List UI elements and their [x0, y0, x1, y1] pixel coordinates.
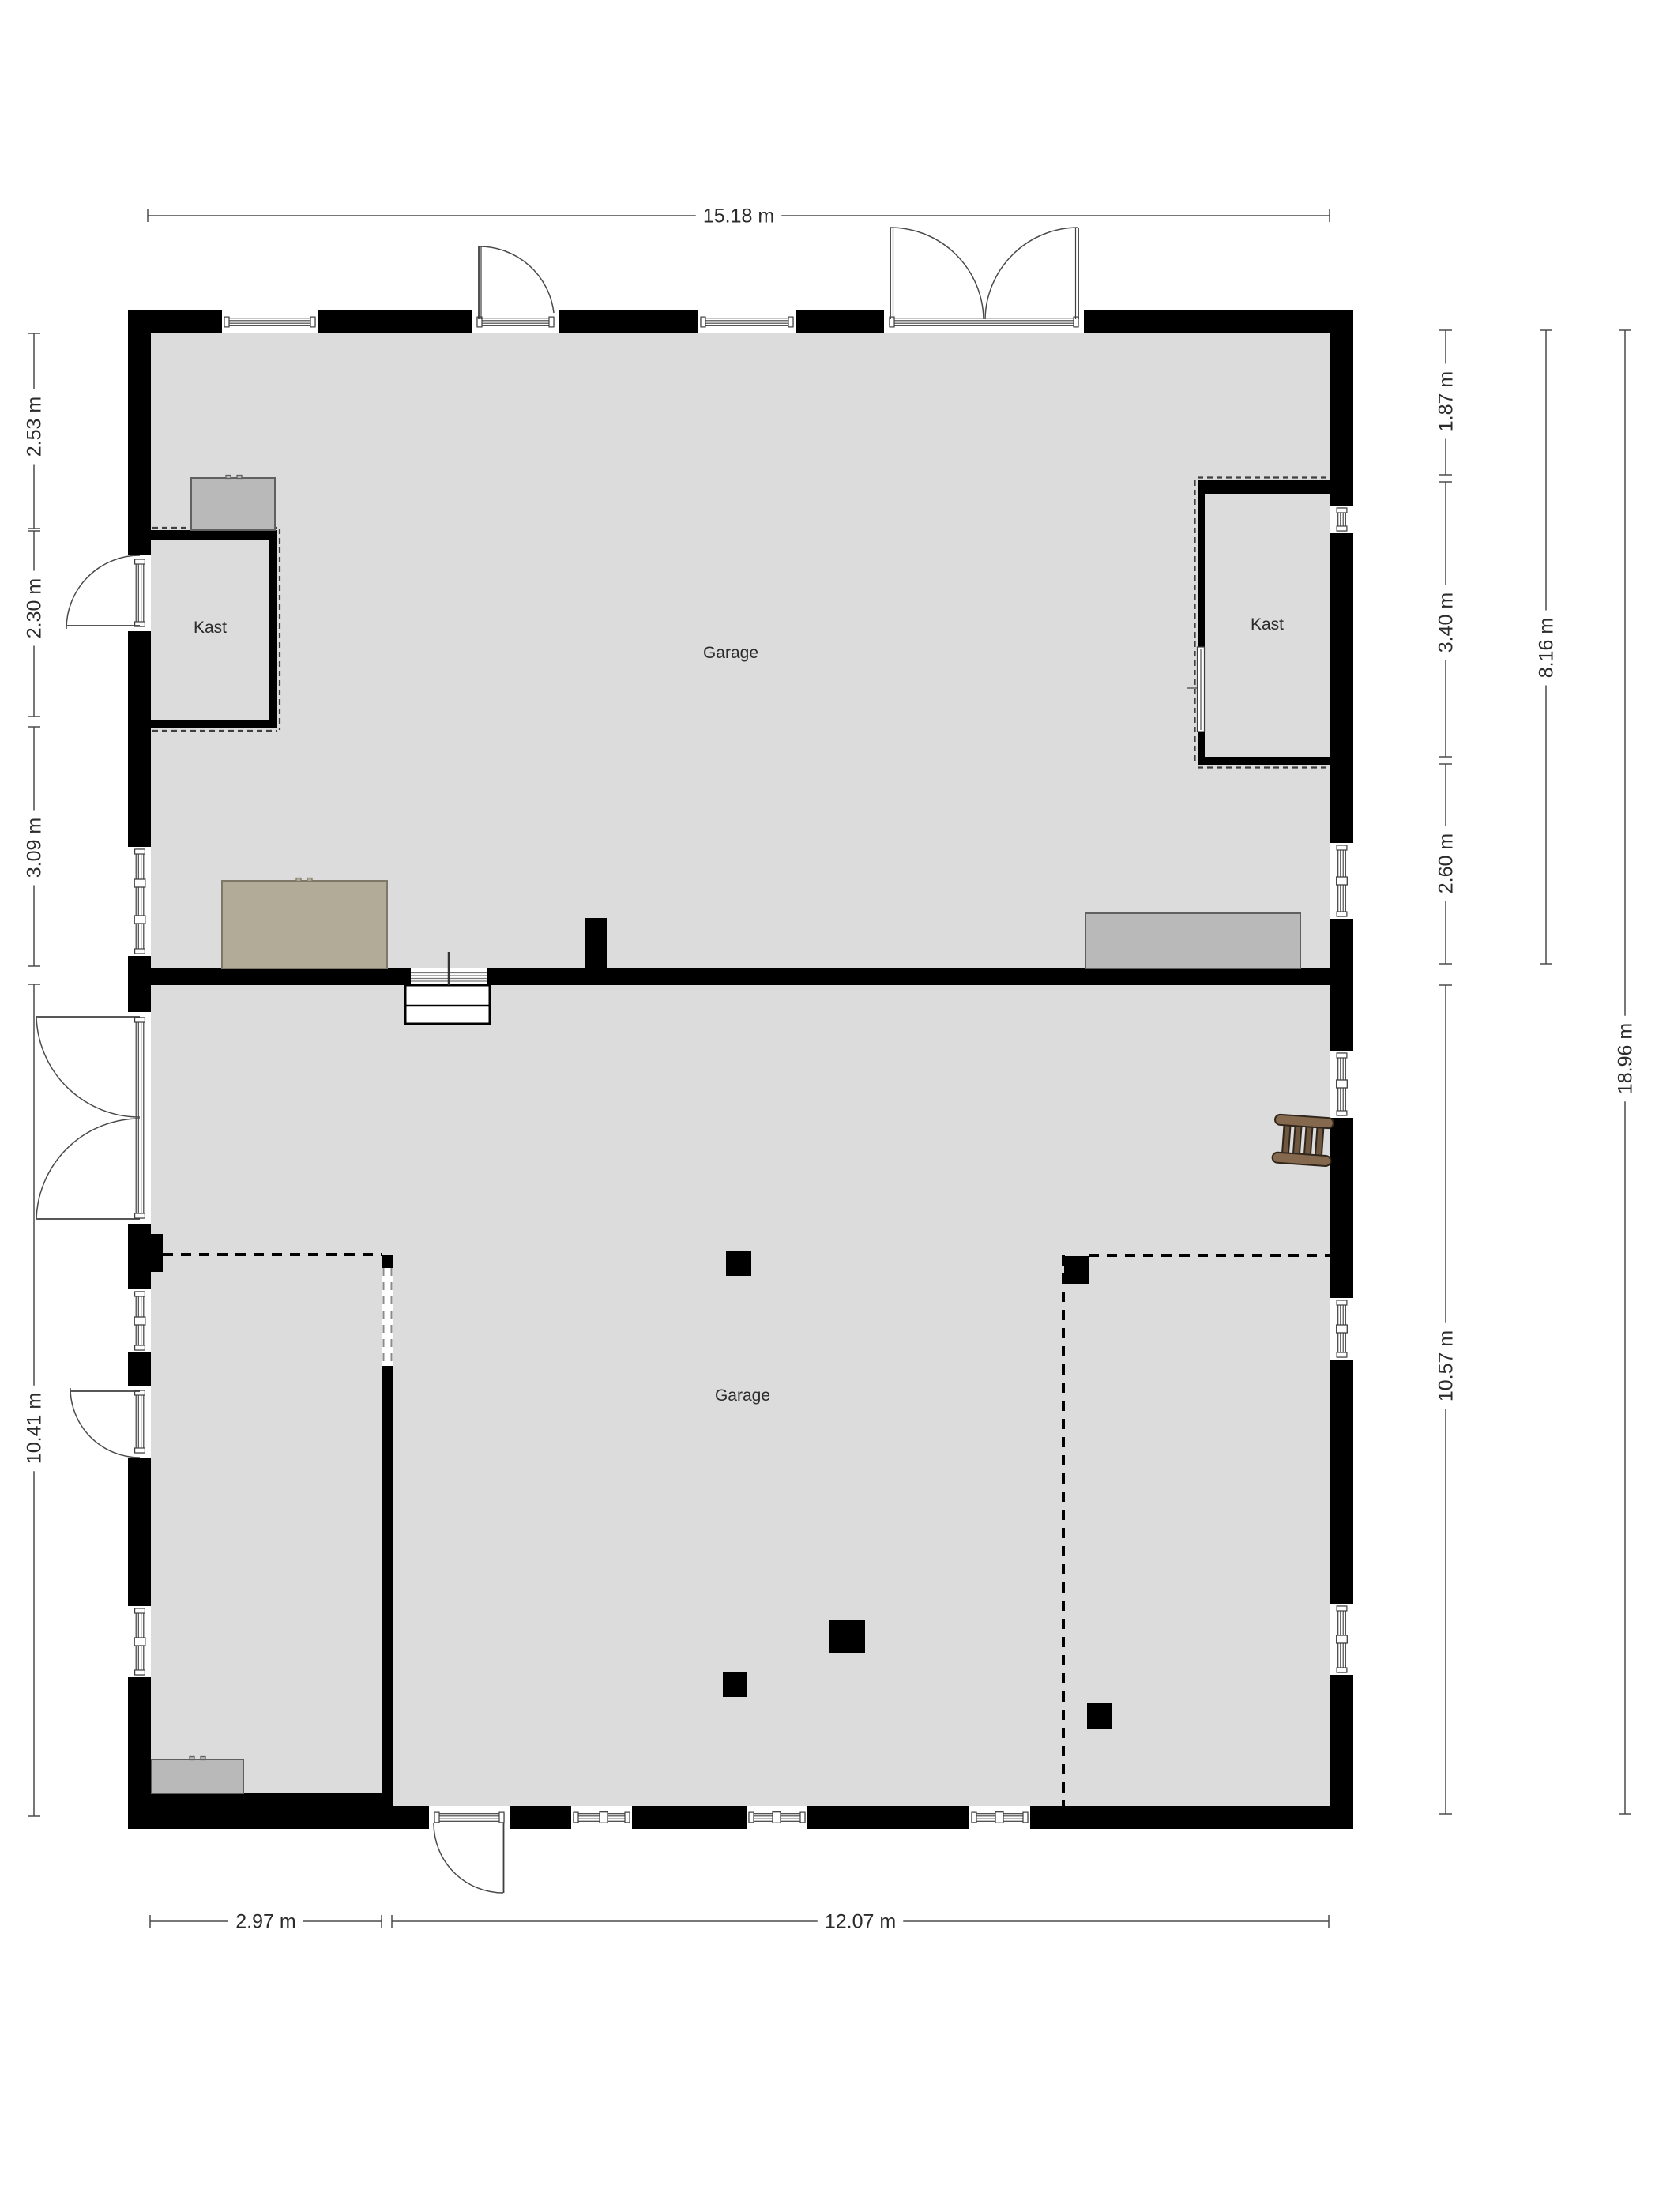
svg-text:2.97 m: 2.97 m	[235, 1911, 295, 1933]
svg-text:10.57 m: 10.57 m	[1435, 1330, 1458, 1401]
svg-text:Kast: Kast	[1251, 615, 1284, 634]
svg-text:12.07 m: 12.07 m	[825, 1911, 896, 1933]
svg-text:2.60 m: 2.60 m	[1435, 833, 1458, 893]
svg-text:Garage: Garage	[703, 644, 758, 662]
svg-text:10.41 m: 10.41 m	[24, 1393, 46, 1464]
svg-text:3.40 m: 3.40 m	[1435, 592, 1458, 653]
svg-text:18.96 m: 18.96 m	[1615, 1023, 1637, 1094]
svg-text:Kast: Kast	[194, 619, 227, 637]
svg-text:2.53 m: 2.53 m	[24, 397, 46, 457]
svg-text:3.09 m: 3.09 m	[24, 818, 46, 878]
svg-text:1.87 m: 1.87 m	[1435, 371, 1458, 431]
svg-text:8.16 m: 8.16 m	[1536, 618, 1558, 678]
svg-text:2.30 m: 2.30 m	[24, 578, 46, 638]
svg-text:15.18 m: 15.18 m	[703, 205, 774, 228]
svg-text:Garage: Garage	[715, 1386, 770, 1405]
